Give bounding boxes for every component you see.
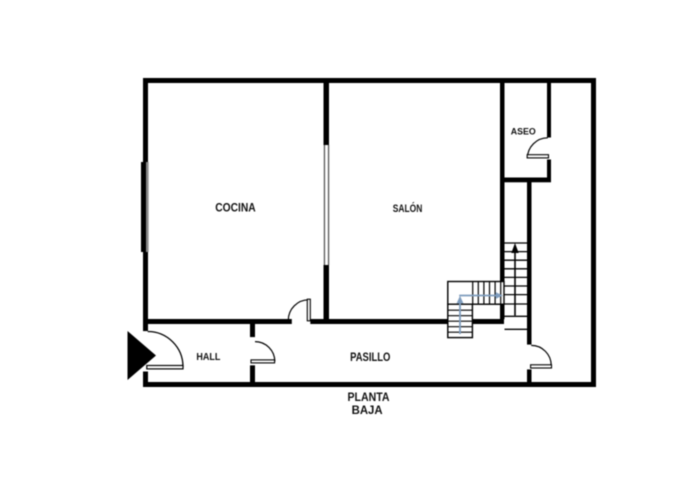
- svg-text:PLANTA: PLANTA: [348, 390, 390, 404]
- svg-text:ASEO: ASEO: [511, 127, 536, 138]
- svg-text:SALÓN: SALÓN: [393, 202, 423, 215]
- svg-text:BAJA: BAJA: [352, 403, 383, 417]
- svg-text:HALL: HALL: [196, 351, 220, 363]
- svg-text:PASILLO: PASILLO: [350, 350, 390, 364]
- svg-text:COCINA: COCINA: [215, 200, 256, 214]
